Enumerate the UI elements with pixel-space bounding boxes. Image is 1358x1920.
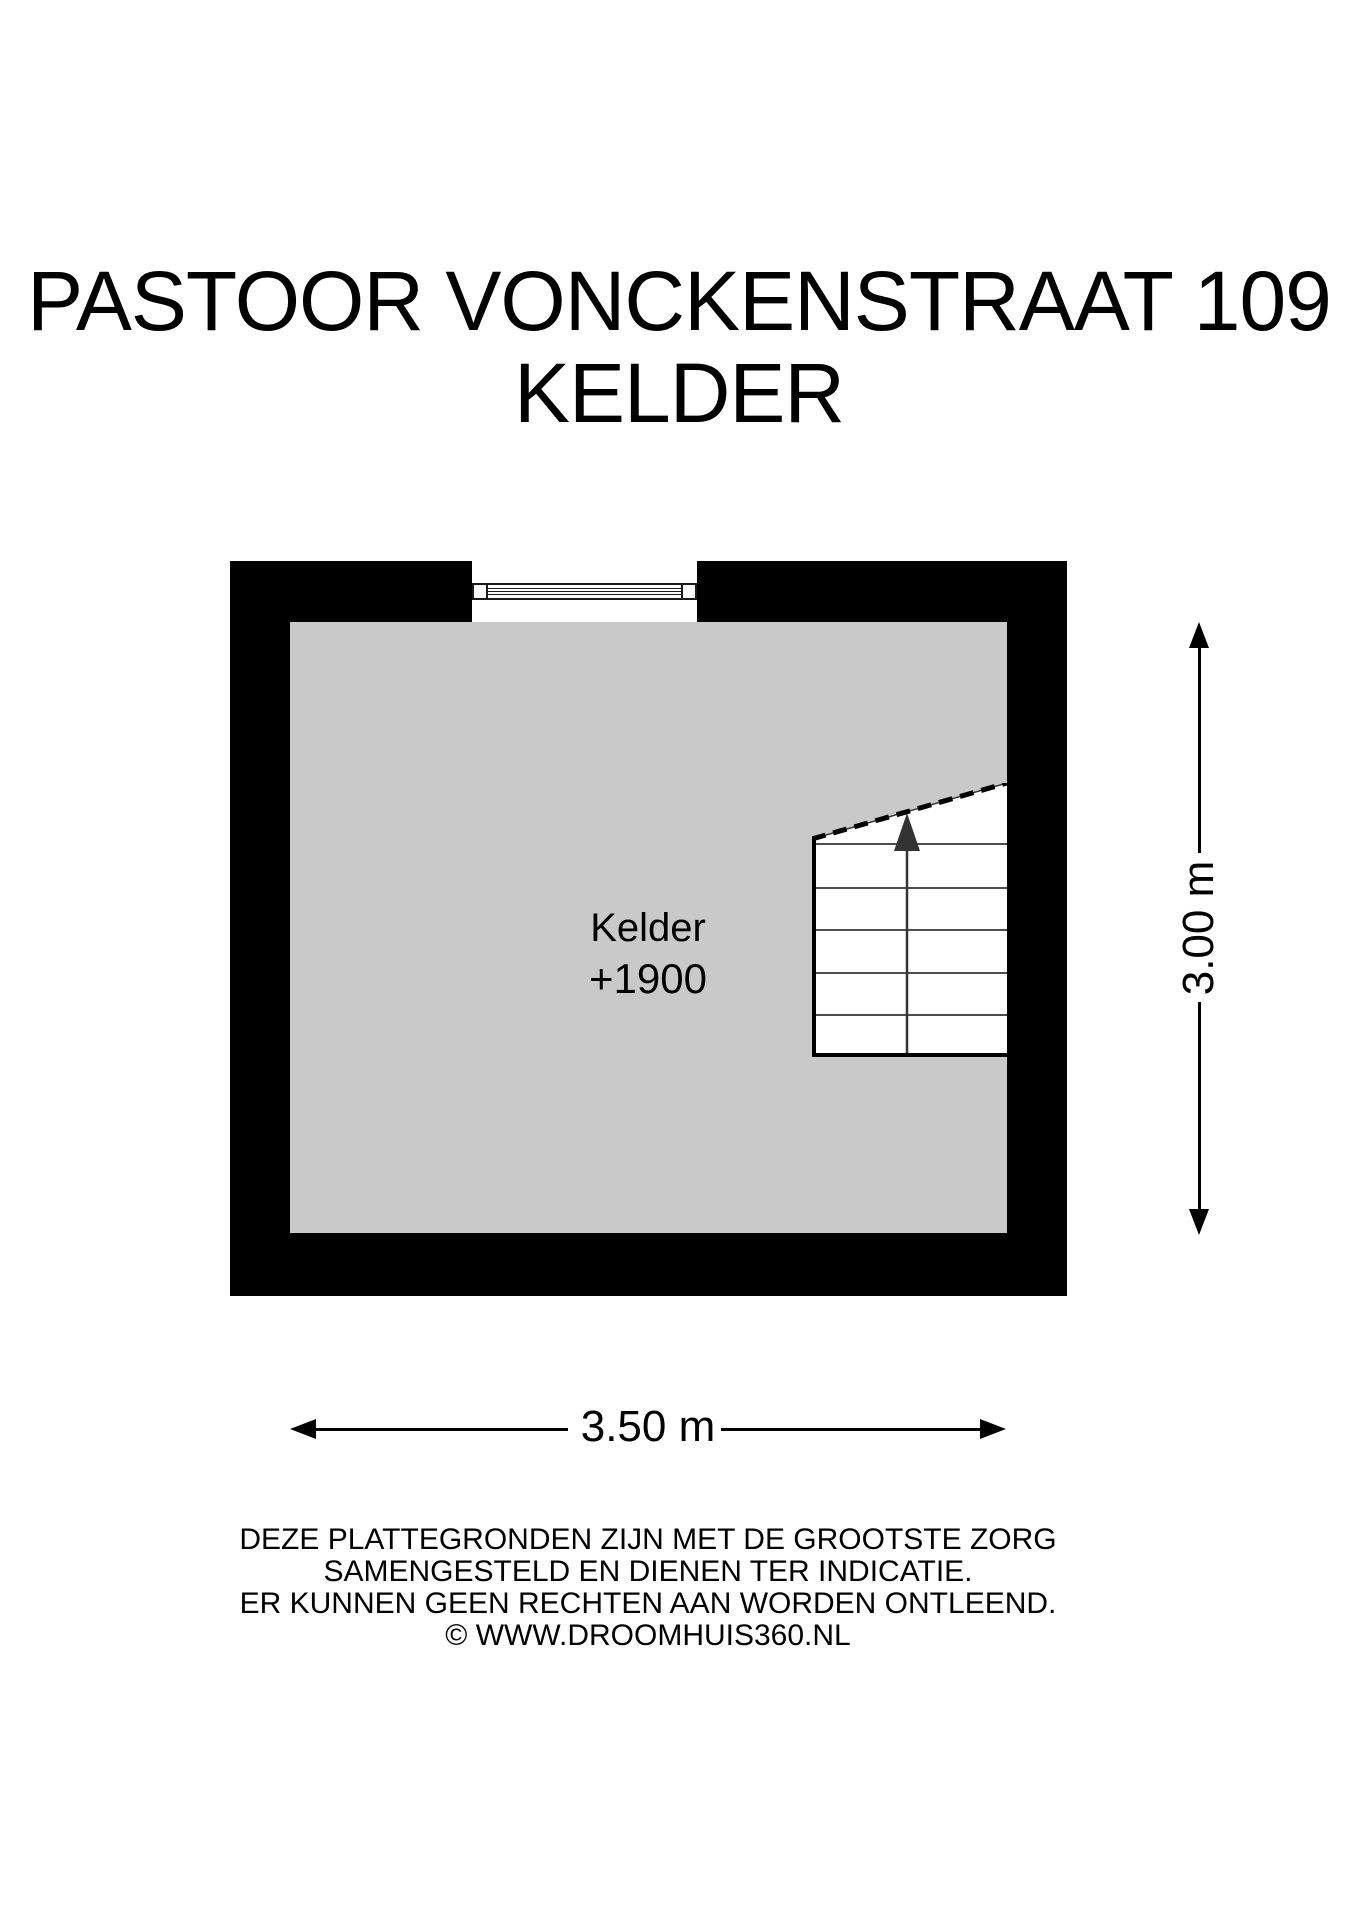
title-floor-name: KELDER: [0, 347, 1358, 439]
room-name: Kelder: [448, 903, 848, 953]
window-mullion-right: [681, 585, 683, 598]
floorplan-page: PASTOOR VONCKENSTRAAT 109 KELDER: [0, 0, 1358, 1920]
dimension-line-vertical-lower: [1198, 1002, 1201, 1211]
window-icon: [472, 583, 697, 600]
room-level: +1900: [448, 953, 848, 1005]
dimension-arrow-down-icon: [1189, 1209, 1209, 1235]
disclaimer-line-1: DEZE PLATTEGRONDEN ZIJN MET DE GROOTSTE …: [148, 1524, 1148, 1556]
dimension-arrow-up-icon: [1189, 622, 1209, 648]
dimension-width-label: 3.50 m: [290, 1405, 1006, 1449]
room-label: Kelder +1900: [448, 903, 848, 1005]
disclaimer-line-2: SAMENGESTELD EN DIENEN TER INDICATIE.: [148, 1556, 1148, 1588]
disclaimer-line-4: © WWW.DROOMHUIS360.NL: [148, 1620, 1148, 1652]
title-address: PASTOOR VONCKENSTRAAT 109: [0, 255, 1358, 347]
disclaimer-line-3: ER KUNNEN GEEN RECHTEN AAN WORDEN ONTLEE…: [148, 1588, 1148, 1620]
page-title: PASTOOR VONCKENSTRAAT 109 KELDER: [0, 255, 1358, 439]
window-opening: [472, 561, 697, 622]
dimension-line-horizontal-right: [721, 1428, 980, 1431]
window-glazing-line: [488, 594, 681, 596]
window-glazing-line: [488, 588, 681, 590]
dimension-arrow-right-icon: [980, 1419, 1006, 1439]
disclaimer: DEZE PLATTEGRONDEN ZIJN MET DE GROOTSTE …: [148, 1524, 1148, 1652]
window-glazing-line: [488, 591, 681, 593]
